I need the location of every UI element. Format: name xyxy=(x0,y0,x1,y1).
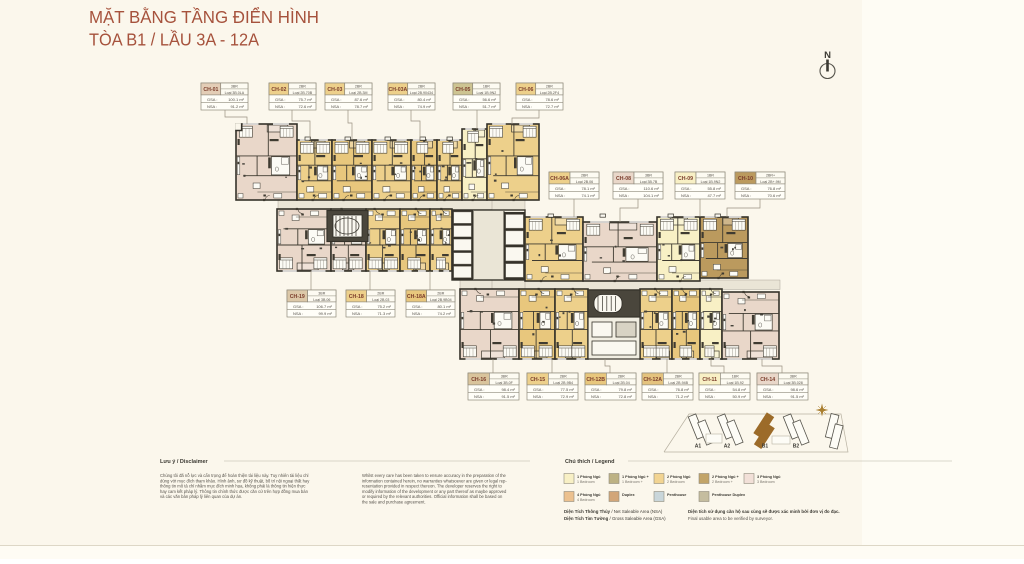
svg-text:Loại 3B.0LA: Loại 3B.0LA xyxy=(225,91,245,95)
svg-text:91.2 m²: 91.2 m² xyxy=(230,104,244,109)
svg-text:CH-16: CH-16 xyxy=(471,377,486,383)
svg-text:91.5 m²: 91.5 m² xyxy=(501,394,515,399)
svg-text:72.6 m²: 72.6 m² xyxy=(298,104,312,109)
svg-text:GSA :: GSA : xyxy=(275,97,285,102)
svg-text:78.7 m²: 78.7 m² xyxy=(354,104,368,109)
svg-text:1 Bedroom +: 1 Bedroom + xyxy=(622,480,643,484)
svg-text:GSA :: GSA : xyxy=(533,387,543,392)
svg-text:2BR: 2BR xyxy=(618,375,625,379)
svg-text:GSA :: GSA : xyxy=(648,387,658,392)
svg-text:NSA :: NSA : xyxy=(352,311,362,316)
svg-text:hay cam kết pháp lý. Thông tin: hay cam kết pháp lý. Thông tin chính thứ… xyxy=(160,489,309,494)
svg-text:2BR: 2BR xyxy=(299,85,306,89)
svg-text:Loại 2B.03: Loại 2B.03 xyxy=(372,298,389,302)
svg-text:CH-06: CH-06 xyxy=(518,87,533,93)
svg-text:2 Phòng Ngủ: 2 Phòng Ngủ xyxy=(667,475,691,479)
svg-text:Loại 2B.70B: Loại 2B.70B xyxy=(293,91,313,95)
svg-text:B1: B1 xyxy=(762,444,769,450)
svg-text:CH-15: CH-15 xyxy=(530,377,545,383)
svg-text:79.8 m²: 79.8 m² xyxy=(618,387,632,392)
svg-text:3BR: 3BR xyxy=(501,375,508,379)
svg-text:GSA :: GSA : xyxy=(591,387,601,392)
svg-text:2 Phòng Ngủ +: 2 Phòng Ngủ + xyxy=(712,475,739,479)
svg-text:NSA :: NSA : xyxy=(394,104,404,109)
svg-text:72.7 m²: 72.7 m² xyxy=(545,104,559,109)
svg-text:GSA :: GSA : xyxy=(763,387,773,392)
svg-text:B2: B2 xyxy=(793,444,800,450)
svg-text:resentation provided in respec: resentation provided in respect thereon.… xyxy=(362,484,502,489)
svg-text:110.6 m²: 110.6 m² xyxy=(644,186,660,191)
svg-text:NSA :: NSA : xyxy=(681,193,691,198)
svg-text:Loại 2B.06: Loại 2B.06 xyxy=(576,180,593,184)
svg-text:NSA :: NSA : xyxy=(522,104,532,109)
svg-text:1BR: 1BR xyxy=(707,174,714,178)
svg-text:dùng với mục đích tham khảo. H: dùng với mục đích tham khảo. Hình ảnh, s… xyxy=(160,478,310,483)
svg-text:4 Phòng Ngủ: 4 Phòng Ngủ xyxy=(577,493,601,497)
svg-text:NSA :: NSA : xyxy=(207,104,217,109)
svg-text:2 Bedroom +: 2 Bedroom + xyxy=(712,480,733,484)
svg-text:CH-01: CH-01 xyxy=(203,87,218,93)
svg-text:Diện tích sử dụng căn hộ sau c: Diện tích sử dụng căn hộ sau cùng sẽ đượ… xyxy=(688,509,840,514)
svg-text:3 Phòng Ngủ: 3 Phòng Ngủ xyxy=(757,475,781,479)
svg-text:76.8 m²: 76.8 m² xyxy=(675,387,689,392)
svg-text:CH-12B: CH-12B xyxy=(586,377,605,383)
svg-text:GSA :: GSA : xyxy=(331,97,341,102)
svg-text:Loại 2B.9B04: Loại 2B.9B04 xyxy=(430,298,452,302)
svg-text:modify information of the deve: modify information of the development or… xyxy=(362,489,507,494)
svg-text:NSA :: NSA : xyxy=(533,394,543,399)
svg-text:GSA :: GSA : xyxy=(619,186,629,191)
svg-text:106.7 m²: 106.7 m² xyxy=(316,304,332,309)
svg-text:Duplex: Duplex xyxy=(622,493,636,497)
svg-text:1 Bedroom: 1 Bedroom xyxy=(577,480,595,484)
svg-text:NSA :: NSA : xyxy=(555,193,565,198)
svg-text:the sale and purchase agreemen: the sale and purchase agreement. xyxy=(362,500,426,505)
svg-text:GSA :: GSA : xyxy=(293,304,303,309)
svg-text:GSA :: GSA : xyxy=(705,387,715,392)
svg-text:2BR+: 2BR+ xyxy=(766,174,775,178)
svg-text:NSA :: NSA : xyxy=(331,104,341,109)
svg-text:GSA :: GSA : xyxy=(459,97,469,102)
svg-text:NSA :: NSA : xyxy=(293,311,303,316)
svg-text:72.9 m²: 72.9 m² xyxy=(560,394,574,399)
svg-text:NSA :: NSA : xyxy=(648,394,658,399)
svg-text:Diện Tích Thông Thủy / Net Sal: Diện Tích Thông Thủy / Net Saleable Area… xyxy=(564,509,663,514)
svg-text:Loại 2B.90434: Loại 2B.90434 xyxy=(410,91,433,95)
svg-text:CH-03A: CH-03A xyxy=(389,87,408,93)
svg-text:CH-18: CH-18 xyxy=(349,294,364,300)
svg-text:NSA :: NSA : xyxy=(275,104,285,109)
svg-text:80.1 m²: 80.1 m² xyxy=(437,304,451,309)
svg-text:98.4 m²: 98.4 m² xyxy=(501,387,515,392)
svg-text:N: N xyxy=(824,50,831,61)
svg-text:100.1 m²: 100.1 m² xyxy=(228,97,244,102)
svg-text:GSA :: GSA : xyxy=(394,97,404,102)
svg-text:A2: A2 xyxy=(724,444,731,450)
svg-text:CH-11: CH-11 xyxy=(702,377,717,383)
svg-text:1BR: 1BR xyxy=(732,375,739,379)
svg-text:NSA :: NSA : xyxy=(474,394,484,399)
svg-text:91.5 m²: 91.5 m² xyxy=(790,394,804,399)
svg-text:55.8 m²: 55.8 m² xyxy=(707,186,721,191)
svg-text:Loại 2B+.9M: Loại 2B+.9M xyxy=(760,180,780,184)
svg-text:Diện Tích Tim Tường / Gross Sa: Diện Tích Tim Tường / Gross Saleable Are… xyxy=(564,516,666,521)
svg-text:Loại 3B.06: Loại 3B.06 xyxy=(313,298,330,302)
svg-text:71.3 m²: 71.3 m² xyxy=(377,311,391,316)
svg-text:72.8 m²: 72.8 m² xyxy=(618,394,632,399)
svg-text:Loại 1B.92: Loại 1B.92 xyxy=(727,381,744,385)
svg-text:4 Bedroom: 4 Bedroom xyxy=(577,498,595,502)
svg-text:54.8 m²: 54.8 m² xyxy=(732,387,746,392)
svg-text:CH-12A: CH-12A xyxy=(643,377,662,383)
svg-text:Loại 2B.2F4: Loại 2B.2F4 xyxy=(540,91,559,95)
svg-text:47.7 m²: 47.7 m² xyxy=(707,193,721,198)
svg-text:1 Phòng Ngủ +: 1 Phòng Ngủ + xyxy=(622,475,649,479)
svg-text:CH-19: CH-19 xyxy=(290,294,305,300)
svg-text:Loại 2B.9B4: Loại 2B.9B4 xyxy=(553,381,573,385)
svg-text:GSA :: GSA : xyxy=(412,304,422,309)
svg-text:75.2 m²: 75.2 m² xyxy=(377,304,391,309)
svg-text:78.1 m²: 78.1 m² xyxy=(581,186,595,191)
svg-text:GSA :: GSA : xyxy=(207,97,217,102)
svg-text:3 Bedroom: 3 Bedroom xyxy=(757,480,775,484)
svg-text:GSA :: GSA : xyxy=(741,186,751,191)
svg-text:Loại 2B.04: Loại 2B.04 xyxy=(613,381,630,385)
svg-text:1BR: 1BR xyxy=(483,85,490,89)
svg-text:MẶT BẰNG TẦNG ĐIỂN HÌNH: MẶT BẰNG TẦNG ĐIỂN HÌNH xyxy=(89,7,319,27)
svg-text:51.7 m²: 51.7 m² xyxy=(482,104,496,109)
svg-text:NSA :: NSA : xyxy=(591,394,601,399)
svg-text:50.9 m²: 50.9 m² xyxy=(732,394,746,399)
svg-text:GSA :: GSA : xyxy=(474,387,484,392)
svg-text:56.6 m²: 56.6 m² xyxy=(482,97,496,102)
svg-text:76.8 m²: 76.8 m² xyxy=(767,186,781,191)
svg-text:Chú thích / Legend: Chú thích / Legend xyxy=(565,459,615,465)
svg-text:CH-14: CH-14 xyxy=(760,377,775,383)
svg-text:2BR: 2BR xyxy=(581,174,588,178)
svg-text:Penthouse Duplex: Penthouse Duplex xyxy=(712,493,746,497)
svg-text:2BR: 2BR xyxy=(355,85,362,89)
svg-text:2BR: 2BR xyxy=(560,375,567,379)
svg-text:3BR: 3BR xyxy=(318,292,325,296)
svg-text:GSA :: GSA : xyxy=(522,97,532,102)
svg-text:CH-08: CH-08 xyxy=(616,176,631,182)
svg-text:71.2 m²: 71.2 m² xyxy=(675,394,689,399)
svg-text:A1: A1 xyxy=(695,444,702,450)
svg-text:NSA :: NSA : xyxy=(412,311,422,316)
svg-text:CH-05: CH-05 xyxy=(455,87,470,93)
svg-text:NSA :: NSA : xyxy=(763,394,773,399)
svg-text:1 Phòng Ngủ: 1 Phòng Ngủ xyxy=(577,475,601,479)
svg-text:2BR: 2BR xyxy=(418,85,425,89)
svg-text:CH-03: CH-03 xyxy=(327,87,342,93)
svg-text:GSA :: GSA : xyxy=(555,186,565,191)
svg-text:87.6 m²: 87.6 m² xyxy=(354,97,368,102)
svg-text:CH-10: CH-10 xyxy=(738,176,753,182)
svg-text:75.7 m²: 75.7 m² xyxy=(298,97,312,102)
svg-text:74.1 m²: 74.1 m² xyxy=(581,193,595,198)
svg-text:GSA :: GSA : xyxy=(352,304,362,309)
svg-text:NSA :: NSA : xyxy=(619,193,629,198)
svg-text:74.2 m²: 74.2 m² xyxy=(437,311,451,316)
svg-text:2BR: 2BR xyxy=(675,375,682,379)
svg-text:NSA :: NSA : xyxy=(705,394,715,399)
svg-text:Lưu ý / Disclaimer: Lưu ý / Disclaimer xyxy=(160,459,209,465)
svg-text:74.9 m²: 74.9 m² xyxy=(417,104,431,109)
svg-text:70.6 m²: 70.6 m² xyxy=(767,193,781,198)
svg-text:77.5 m²: 77.5 m² xyxy=(560,387,574,392)
svg-text:3BR: 3BR xyxy=(645,174,652,178)
svg-text:NSA :: NSA : xyxy=(459,104,469,109)
svg-text:Loại 3B.7B: Loại 3B.7B xyxy=(640,180,658,184)
svg-text:CH-06A: CH-06A xyxy=(550,176,569,182)
svg-text:thông tin mô tả chỉ nhằm mục đ: thông tin mô tả chỉ nhằm mục đích minh h… xyxy=(160,484,306,489)
svg-text:2BR: 2BR xyxy=(546,85,553,89)
svg-text:Loại 2B.94B: Loại 2B.94B xyxy=(668,381,688,385)
svg-text:Loại 3B.028: Loại 3B.028 xyxy=(784,381,803,385)
svg-text:Whilst every care has been tak: Whilst every care has been taken to ensu… xyxy=(362,473,507,478)
svg-text:CH-18A: CH-18A xyxy=(407,294,426,300)
svg-text:Loại 2B.3M: Loại 2B.3M xyxy=(349,91,367,95)
svg-text:Loại 3B.0F: Loại 3B.0F xyxy=(496,381,514,385)
svg-text:104.1 m²: 104.1 m² xyxy=(643,193,659,198)
svg-text:Loại 1B.9N2: Loại 1B.9N2 xyxy=(477,91,497,95)
svg-text:NSA :: NSA : xyxy=(741,193,751,198)
svg-text:3BR: 3BR xyxy=(790,375,797,379)
svg-text:CH-09: CH-09 xyxy=(678,176,693,182)
svg-text:or required by the relevant au: or required by the relevant authorities.… xyxy=(362,494,503,499)
svg-text:3BR: 3BR xyxy=(231,85,238,89)
svg-text:98.6 m²: 98.6 m² xyxy=(790,387,804,392)
svg-text:99.9 m²: 99.9 m² xyxy=(318,311,332,316)
svg-text:2BR: 2BR xyxy=(377,292,384,296)
svg-text:CH-02: CH-02 xyxy=(271,87,286,93)
svg-text:Penthouse: Penthouse xyxy=(667,493,686,497)
svg-text:Final usable area to be verifi: Final usable area to be verified by surv… xyxy=(688,516,773,521)
svg-text:Chúng tôi đã nỗ lực và cẩn trọ: Chúng tôi đã nỗ lực và cẩn trọng để hoàn… xyxy=(160,473,309,478)
svg-text:2 Bedroom: 2 Bedroom xyxy=(667,480,685,484)
svg-text:78.6 m²: 78.6 m² xyxy=(545,97,559,102)
svg-text:GSA :: GSA : xyxy=(681,186,691,191)
svg-text:TÒA B1 / LẦU 3A - 12A: TÒA B1 / LẦU 3A - 12A xyxy=(89,30,259,50)
svg-text:2BR: 2BR xyxy=(437,292,444,296)
svg-text:và các văn bản pháp lý liên qu: và các văn bản pháp lý liên quan của dự … xyxy=(160,494,242,499)
svg-text:information contained herein,: information contained herein, no warrant… xyxy=(362,478,507,483)
svg-text:80.4 m²: 80.4 m² xyxy=(417,97,431,102)
svg-text:Loại 1B.9N2: Loại 1B.9N2 xyxy=(701,180,721,184)
